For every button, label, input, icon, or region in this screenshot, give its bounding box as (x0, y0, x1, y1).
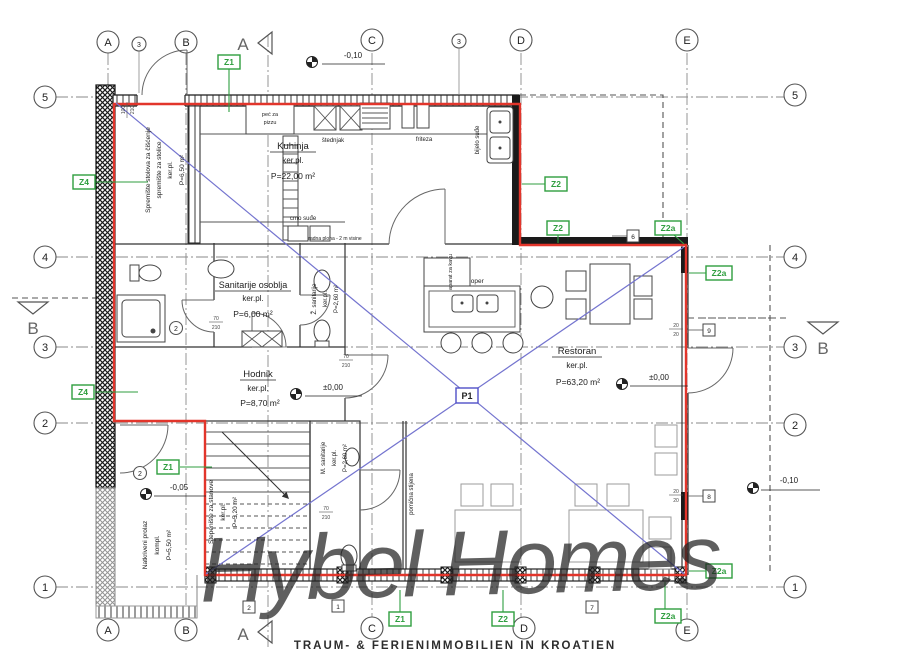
shower (117, 295, 165, 342)
svg-text:70: 70 (323, 506, 329, 512)
elev-prolaz: -0,05 (170, 483, 189, 492)
chair (566, 271, 586, 291)
washbasin-staff (208, 260, 234, 278)
svg-text:20: 20 (673, 323, 679, 329)
svg-text:20: 20 (673, 332, 679, 338)
section-arrow-b-right (808, 322, 838, 334)
bar-area: sudoper aparat za kavu (424, 254, 553, 353)
zone-z4-lower: Z4 (78, 387, 88, 397)
grid-label-3-right: 3 (792, 342, 798, 354)
section-arrow-b-left (18, 302, 48, 314)
grid-label-B-bottom: B (182, 625, 189, 637)
elev-terasa: -0,10 (780, 476, 799, 485)
svg-text:ker.pl.: ker.pl. (167, 161, 174, 179)
grid-label-5-left: 5 (42, 92, 48, 104)
coffee-label: aparat za kavu (448, 254, 454, 290)
grid-label-A-top: A (104, 37, 112, 49)
door-opening-top (137, 93, 185, 108)
svg-text:kompl.: kompl. (154, 535, 161, 554)
coffee-station (424, 258, 470, 286)
toilet-zwc (314, 320, 330, 342)
floor-plan-drawing: A B C D E A B C D E 5 4 3 2 1 5 4 3 2 1 … (0, 0, 900, 661)
section-label-a-top: A (237, 35, 249, 54)
svg-text:ker.pl.: ker.pl. (323, 291, 329, 307)
dim-door-wc: 70 210 (209, 316, 223, 331)
fryer-2 (417, 104, 429, 128)
dashed-canopy-topright (520, 95, 663, 237)
fridge (360, 103, 390, 129)
stove (314, 106, 362, 130)
grid-label-5-right: 5 (792, 90, 798, 102)
svg-text:210: 210 (130, 106, 136, 115)
svg-text:P=5,50 m²: P=5,50 m² (166, 529, 173, 560)
grid-label-A-bottom: A (104, 625, 112, 637)
svg-text:Spremište stolova za čišćenje: Spremište stolova za čišćenje (145, 127, 152, 213)
zone-z1-top: Z1 (224, 57, 234, 67)
room-hodnik-name: Hodnik (243, 369, 273, 380)
zone-z1-mid: Z1 (163, 462, 173, 472)
svg-text:Ž. sanitarije: Ž. sanitarije (310, 283, 318, 315)
svg-text:P=2,60 m²: P=2,60 m² (334, 285, 340, 313)
dim-door-zwc: 70 210 (339, 354, 353, 369)
room-restoran-name: Restoran (558, 346, 597, 357)
fryer-label: friteza (416, 137, 433, 143)
zone-z2a-b: Z2a (712, 268, 727, 278)
floor-plan-page: A B C D E A B C D E 5 4 3 2 1 5 4 3 2 1 … (0, 0, 900, 661)
section-label-b-left: B (27, 319, 38, 338)
ref-box-9: 9 (707, 328, 711, 335)
grid-label-D-bottom: D (520, 623, 528, 635)
wall-spremiste-divider (188, 106, 200, 243)
grid-label-C-bottom: C (368, 623, 376, 635)
room-spremiste-label: Spremište stolova za čišćenje spremište … (145, 127, 186, 213)
bar-stool (472, 333, 492, 353)
white-dish-sink (487, 107, 513, 163)
grid-label-1-right: 1 (792, 582, 798, 594)
table (590, 264, 630, 324)
grid-label-D-top: D (517, 35, 525, 47)
zone-z2a-bottom: Z2a (661, 611, 676, 621)
svg-text:Natkriveni prolaz: Natkriveni prolaz (142, 521, 149, 569)
bar-stool (503, 333, 523, 353)
pizza-oven (246, 104, 294, 134)
zone-z2a-a: Z2a (661, 223, 676, 233)
zone-p1: P1 (461, 391, 472, 401)
partition-note: pomična stijena (409, 472, 415, 514)
svg-text:ker.pl.: ker.pl. (332, 450, 338, 466)
watermark: Hybel Homes TRAUM- & FERIENIMMOBILIEN IN… (198, 506, 722, 652)
zone-z4-upper: Z4 (79, 177, 89, 187)
zone-z2-b: Z2 (553, 223, 563, 233)
pizza-oven-label-2: pizzu (264, 120, 277, 126)
ref-box-6: 6 (631, 234, 635, 241)
svg-text:20: 20 (673, 498, 679, 504)
room-kuhinja-name: Kuhinja (277, 141, 309, 152)
svg-text:100: 100 (121, 106, 127, 115)
balloon-top-left: 3 (137, 42, 141, 49)
chair (634, 299, 652, 319)
blue-section-lines (116, 103, 684, 574)
elev-top: -0,10 (344, 51, 363, 60)
svg-text:70: 70 (213, 316, 219, 322)
room-prolaz-label: Natkriveni prolaz kompl. P=5,50 m² (142, 521, 173, 569)
svg-text:ker.pl.: ker.pl. (220, 503, 227, 521)
elev-hodnik: ±0,00 (323, 383, 344, 392)
svg-text:spremište za stolice: spremište za stolice (156, 141, 163, 198)
section-label-b-right: B (817, 339, 828, 358)
room-restoran-finish: ker.pl. (566, 361, 587, 370)
balloon-top-mid: 3 (457, 39, 461, 46)
grid-label-3-left: 3 (42, 342, 48, 354)
svg-text:P=6,50 m²: P=6,50 m² (179, 154, 186, 185)
grid-label-4-left: 4 (42, 252, 48, 264)
black-dish-label: crno suđe (290, 216, 317, 222)
room-hodnik-area: P=8,70 m² (240, 398, 280, 408)
section-arrow-a-bottom (258, 621, 272, 643)
room-sanitarije-finish: ker.pl. (242, 294, 263, 303)
kitchen-note: radna ploha - 2 m visine (308, 236, 362, 242)
wall-left-dark (96, 85, 115, 488)
grid-label-B-top: B (182, 37, 189, 49)
wc-tank (130, 265, 139, 281)
svg-text:M. sanitarije: M. sanitarije (321, 441, 327, 474)
wall-left-gray (96, 488, 115, 618)
grid-label-C-top: C (368, 35, 376, 47)
door-tag-2: 2 (138, 471, 142, 478)
room-restoran-area: P=63,20 m² (556, 377, 600, 387)
grid-label-2-right: 2 (792, 420, 798, 432)
black-dish-sink-1 (288, 226, 308, 241)
round-table (531, 286, 553, 308)
grid-label-E-bottom: E (683, 625, 690, 637)
svg-text:70: 70 (343, 354, 349, 360)
stove-label: štednjak (322, 138, 345, 144)
section-label-a-bottom: A (237, 625, 249, 644)
grid-label-2-left: 2 (42, 418, 48, 430)
svg-text:210: 210 (342, 363, 351, 369)
svg-text:20: 20 (673, 489, 679, 495)
prolaz-bottom-band (96, 606, 197, 618)
zone-z2-a: Z2 (551, 179, 561, 189)
room-sanitarije-area: P=6,00 m² (233, 309, 273, 319)
toilet-left (139, 265, 161, 281)
bar-stool (441, 333, 461, 353)
stair-direction-arrow (222, 432, 288, 498)
door-tag-1: 2 (174, 326, 178, 333)
zone-z2-bottom: Z2 (498, 614, 508, 624)
watermark-script: Hybel Homes (198, 506, 722, 622)
elev-restoran: ±0,00 (649, 373, 670, 382)
ref-box-8: 8 (707, 494, 711, 501)
room-hodnik-finish: ker.pl. (247, 384, 268, 393)
svg-text:210: 210 (212, 325, 221, 331)
svg-text:P=2,60 m²: P=2,60 m² (343, 444, 349, 472)
kitchen-fixtures: peć za pizzu štednjak friteza bijelo suđ… (200, 103, 513, 242)
grid-label-1-left: 1 (42, 582, 48, 594)
room-sanitarije-name: Sanitarije osoblja (219, 280, 288, 290)
shelf-x (242, 331, 282, 347)
room-kuhinja-finish: ker.pl. (282, 156, 303, 165)
section-arrow-a-top (258, 32, 272, 54)
room-msan-label: M. sanitarije ker.pl. P=2,60 m² (321, 441, 349, 474)
watermark-tagline: TRAUM- & FERIENIMMOBILIEN IN KROATIEN (294, 640, 616, 652)
white-dish-label: bijelo suđe (475, 125, 481, 154)
room-kuhinja-area: P=22,00 m² (271, 171, 315, 181)
pizza-oven-label-1: peć za (262, 112, 279, 118)
fryer-1 (402, 104, 414, 128)
grid-label-E-top: E (683, 35, 690, 47)
grid-label-4-right: 4 (792, 252, 798, 264)
